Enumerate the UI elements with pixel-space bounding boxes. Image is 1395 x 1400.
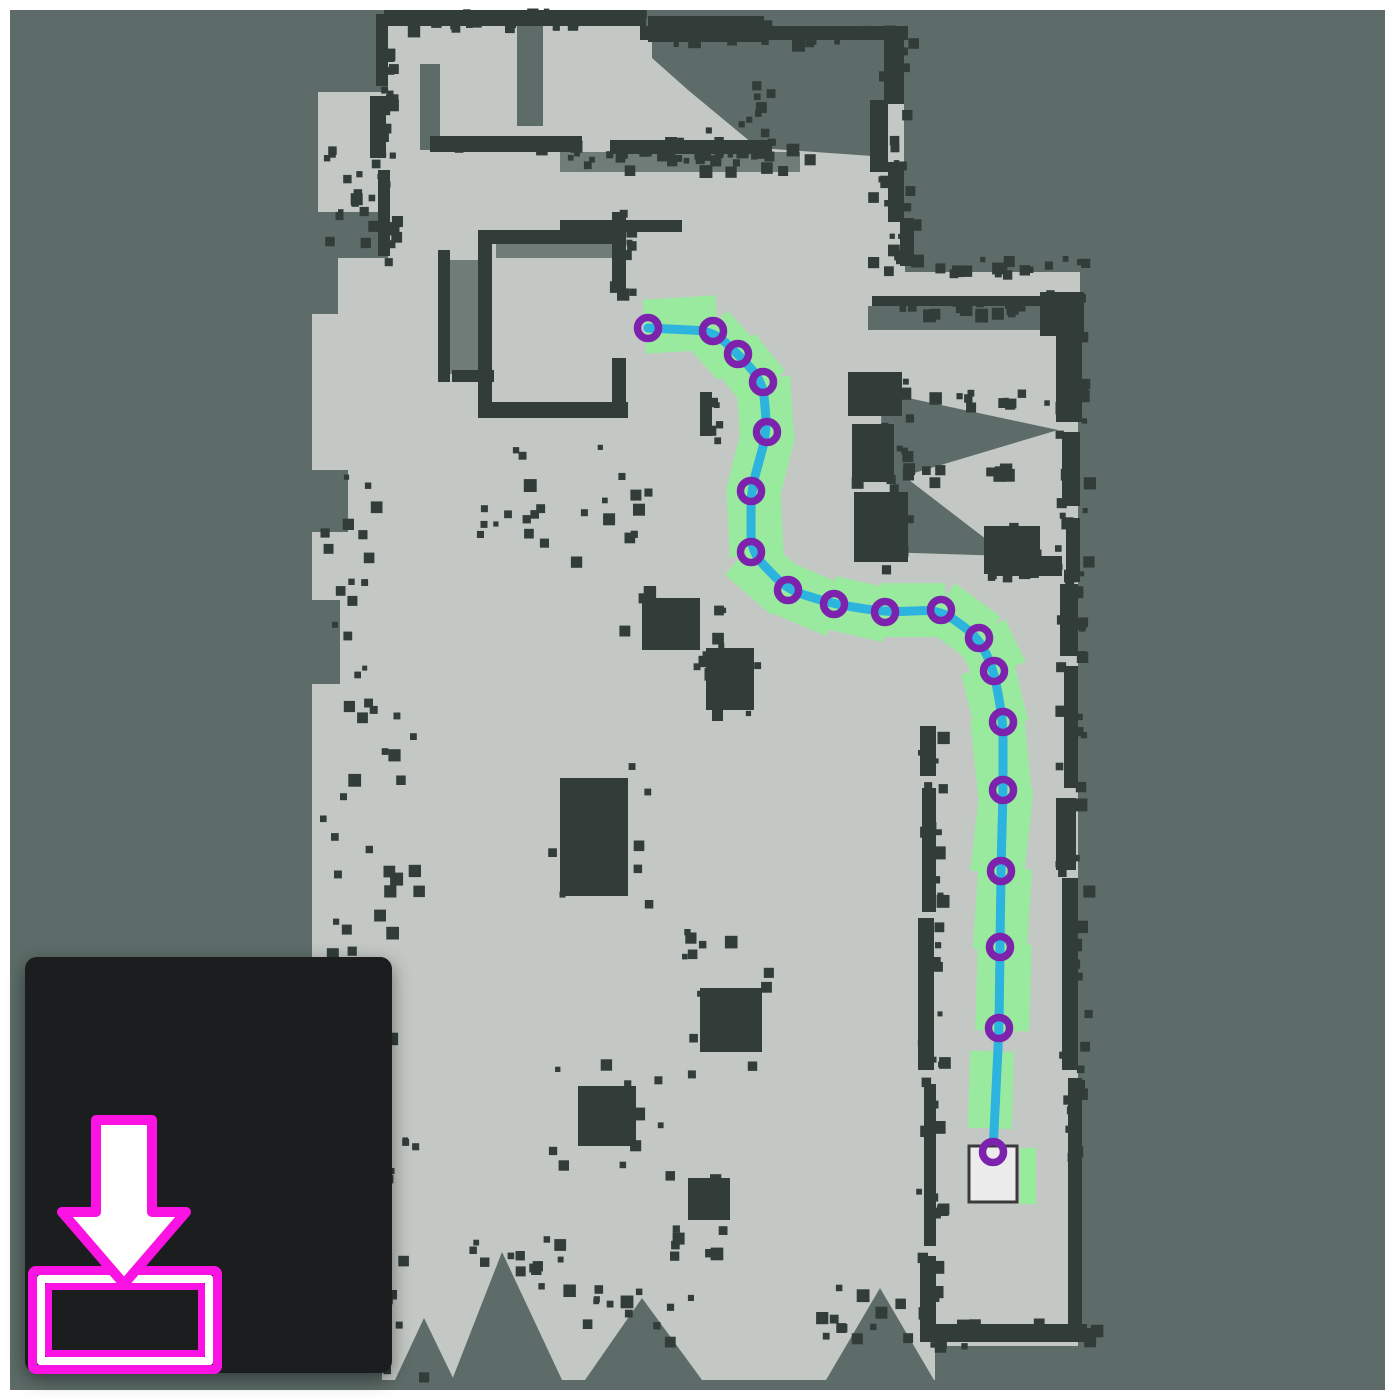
screenshot-stage: ugo G3 #160 x=0.0, y=0.0, 0 deg 位置を変更 位置… [0, 0, 1395, 1400]
route-footprint-at-robot [1020, 1148, 1036, 1204]
robot-control-panel: ugo G3 #160 x=0.0, y=0.0, 0 deg 位置を変更 位置… [25, 957, 392, 1373]
robot-marker[interactable] [969, 1146, 1017, 1202]
